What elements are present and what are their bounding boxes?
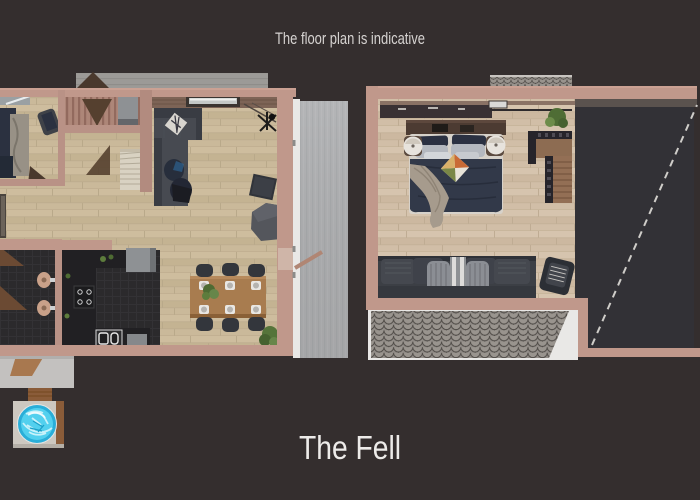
svg-text:The floor plan is indicative: The floor plan is indicative — [275, 29, 425, 48]
svg-text:The Fell: The Fell — [299, 429, 401, 466]
